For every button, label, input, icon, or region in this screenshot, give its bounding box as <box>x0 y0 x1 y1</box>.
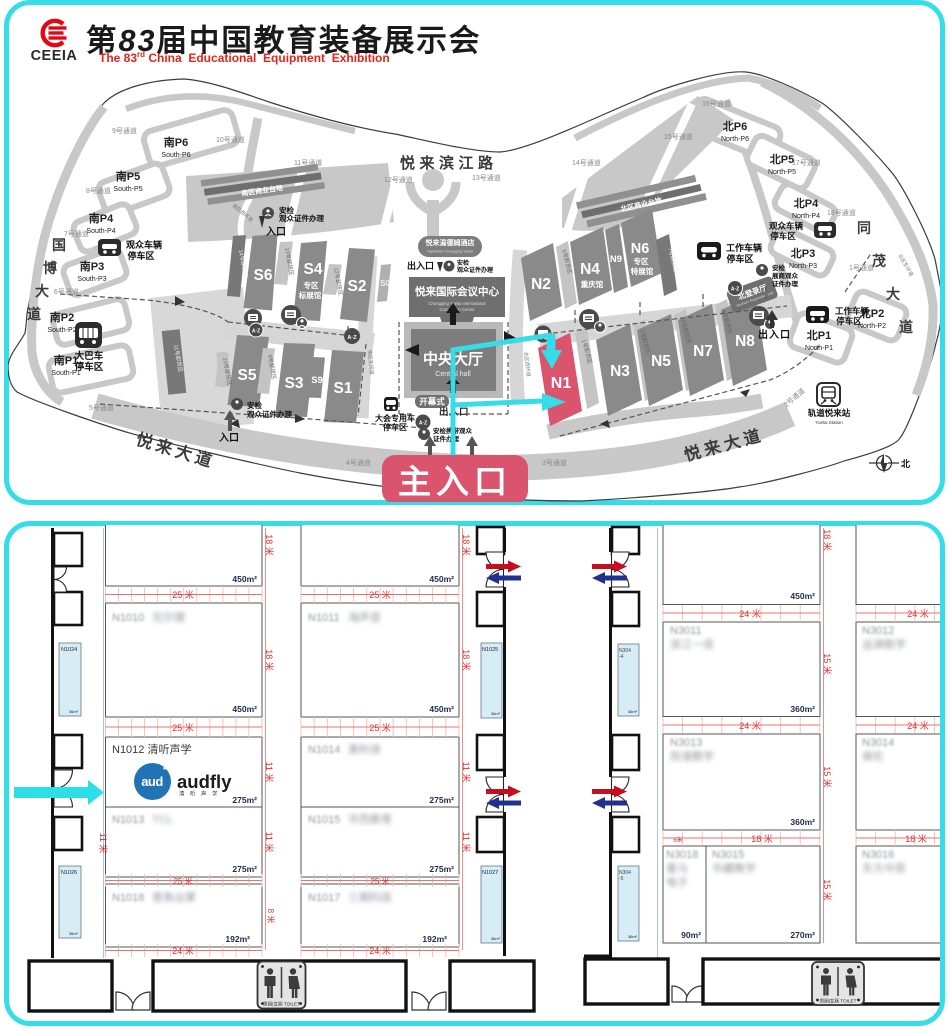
svg-text:18 米: 18 米 <box>751 833 773 844</box>
svg-text:360m²: 360m² <box>790 704 815 714</box>
svg-text:出入口: 出入口 <box>407 260 434 271</box>
svg-text:博: 博 <box>43 260 57 276</box>
svg-text:275m²: 275m² <box>429 864 454 874</box>
svg-text:450m²: 450m² <box>790 591 815 601</box>
svg-text:192m²: 192m² <box>422 934 447 944</box>
svg-text:N1026: N1026 <box>61 870 77 876</box>
svg-text:N1010: N1010 <box>112 612 144 624</box>
svg-text:14号通道: 14号通道 <box>572 158 601 167</box>
svg-text:North-P2: North-P2 <box>858 323 886 330</box>
svg-text:275m²: 275m² <box>232 795 257 805</box>
svg-text:36m²: 36m² <box>491 936 501 941</box>
svg-text:450m²: 450m² <box>232 574 257 584</box>
svg-text:A·Z: A·Z <box>347 335 357 341</box>
svg-text:北: 北 <box>901 458 910 469</box>
svg-text:兄尔理: 兄尔理 <box>152 611 185 624</box>
svg-text:入口: 入口 <box>219 432 239 444</box>
svg-text:South-P5: South-P5 <box>113 186 142 193</box>
svg-text:11 米: 11 米 <box>461 832 472 853</box>
svg-text:N1015: N1015 <box>308 814 340 826</box>
svg-text:6米: 6米 <box>673 836 682 844</box>
svg-text:North-P3: North-P3 <box>789 263 817 270</box>
svg-text:11 米: 11 米 <box>461 762 472 783</box>
svg-text:观众车辆: 观众车辆 <box>769 221 804 231</box>
svg-text:男厕|女厕 TOILET: 男厕|女厕 TOILET <box>820 998 857 1005</box>
svg-text:南P2: 南P2 <box>50 310 74 324</box>
svg-text:-4: -4 <box>619 654 624 660</box>
svg-text:N1011: N1011 <box>308 612 340 624</box>
svg-text:36m²: 36m² <box>69 931 79 936</box>
svg-text:N3: N3 <box>610 363 630 380</box>
svg-text:18 米: 18 米 <box>264 534 275 556</box>
svg-text:开幕式: 开幕式 <box>419 397 445 407</box>
svg-text:S5: S5 <box>238 367 257 384</box>
svg-text:停车区: 停车区 <box>836 316 862 326</box>
svg-text:N1012 清听声学: N1012 清听声学 <box>112 742 191 756</box>
svg-text:停车区: 停车区 <box>75 361 104 373</box>
svg-text:275m²: 275m² <box>232 864 257 874</box>
svg-text:道: 道 <box>899 319 913 335</box>
svg-text:8号通道: 8号通道 <box>86 186 111 195</box>
svg-text:15 米: 15 米 <box>822 766 833 788</box>
svg-text:A·Z: A·Z <box>252 329 260 335</box>
svg-text:观众车辆: 观众车辆 <box>126 239 162 250</box>
svg-text:停车区: 停车区 <box>726 253 753 264</box>
svg-text:25 米: 25 米 <box>172 589 194 600</box>
svg-text:3号通道: 3号通道 <box>542 458 567 467</box>
svg-text:24 米: 24 米 <box>369 945 391 956</box>
svg-text:三期科技: 三期科技 <box>348 890 392 904</box>
svg-text:保伦: 保伦 <box>862 749 884 763</box>
svg-text:N3015: N3015 <box>712 849 744 861</box>
svg-text:aud: aud <box>141 774 163 789</box>
svg-text:墨马: 墨马 <box>666 862 688 875</box>
svg-text:海声音: 海声音 <box>348 610 381 624</box>
svg-text:N1024: N1024 <box>61 647 77 653</box>
svg-text:10号通道: 10号通道 <box>216 135 245 144</box>
svg-text:茂: 茂 <box>872 253 886 269</box>
svg-text:TCL: TCL <box>152 814 173 826</box>
svg-text:24 米: 24 米 <box>907 720 929 731</box>
svg-text:证件办理: 证件办理 <box>433 434 460 443</box>
svg-text:运渊数学: 运渊数学 <box>862 637 906 651</box>
svg-text:N1017: N1017 <box>308 892 340 904</box>
svg-text:N3013: N3013 <box>670 737 702 749</box>
svg-text:25 米: 25 米 <box>369 589 391 600</box>
svg-text:专区: 专区 <box>304 280 319 290</box>
svg-text:北P6: 北P6 <box>723 119 747 133</box>
svg-text:轨道悦来站: 轨道悦来站 <box>808 408 851 418</box>
svg-text:15 米: 15 米 <box>822 879 833 901</box>
svg-text:北P4: 北P4 <box>794 196 819 210</box>
svg-text:36m²: 36m² <box>628 709 638 714</box>
svg-text:90m²: 90m² <box>681 930 701 940</box>
svg-text:192m²: 192m² <box>225 934 250 944</box>
svg-text:男厕|女厕 TOILET: 男厕|女厕 TOILET <box>263 1001 300 1008</box>
svg-text:普魚出軍: 普魚出軍 <box>152 890 196 904</box>
svg-text:观众证件办理: 观众证件办理 <box>279 213 324 223</box>
svg-text:工作车辆: 工作车辆 <box>726 242 762 253</box>
svg-text:阳澄教学: 阳澄教学 <box>670 749 714 763</box>
svg-text:悦来国际会议中心: 悦来国际会议中心 <box>415 285 499 298</box>
svg-text:North-P1: North-P1 <box>805 345 833 352</box>
svg-text:South-P2: South-P2 <box>47 327 76 334</box>
svg-text:S0: S0 <box>380 279 390 288</box>
svg-text:9号通道: 9号通道 <box>112 126 137 135</box>
svg-text:同: 同 <box>857 220 871 236</box>
svg-text:audfly: audfly <box>177 771 232 792</box>
svg-text:专区: 专区 <box>634 256 649 266</box>
svg-text:展商观众: 展商观众 <box>771 271 799 280</box>
svg-text:36m²: 36m² <box>628 934 638 939</box>
svg-text:25 米: 25 米 <box>370 876 389 886</box>
svg-text:N3016: N3016 <box>862 849 894 861</box>
svg-text:南P6: 南P6 <box>164 135 188 149</box>
svg-text:N1027: N1027 <box>482 870 498 876</box>
svg-text:N1013: N1013 <box>112 814 144 826</box>
svg-text:36m²: 36m² <box>69 709 79 714</box>
svg-text:450m²: 450m² <box>429 574 454 584</box>
svg-text:南P4: 南P4 <box>89 211 114 225</box>
svg-text:N4: N4 <box>580 261 600 278</box>
svg-text:工作车辆: 工作车辆 <box>835 306 870 316</box>
svg-text:-5: -5 <box>619 876 624 882</box>
svg-text:Yuelai Station: Yuelai Station <box>815 420 843 425</box>
svg-text:华藏教学: 华藏教学 <box>712 861 756 875</box>
svg-text:S1: S1 <box>334 380 353 397</box>
svg-text:25 米: 25 米 <box>172 722 194 733</box>
svg-text:15号通道: 15号通道 <box>664 132 693 141</box>
svg-text:18号通道: 18号通道 <box>827 208 856 217</box>
svg-text:观众证件办理: 观众证件办理 <box>247 409 292 419</box>
svg-text:重庆馆: 重庆馆 <box>581 279 604 289</box>
svg-text:南P3: 南P3 <box>80 259 104 273</box>
svg-text:主入口: 主入口 <box>398 463 512 500</box>
svg-text:N8: N8 <box>735 333 755 350</box>
svg-text:16号通道: 16号通道 <box>702 99 731 108</box>
svg-text:7号通道: 7号通道 <box>64 229 89 238</box>
svg-text:18 米: 18 米 <box>905 833 927 844</box>
svg-text:360m²: 360m² <box>790 817 815 827</box>
svg-text:North-P6: North-P6 <box>721 136 749 143</box>
svg-text:24 米: 24 米 <box>907 608 929 619</box>
svg-text:N7: N7 <box>693 343 713 360</box>
svg-text:11 米: 11 米 <box>98 833 109 854</box>
svg-text:24 米: 24 米 <box>739 720 761 731</box>
svg-text:东方中原: 东方中原 <box>862 861 906 875</box>
svg-text:24 米: 24 米 <box>739 608 761 619</box>
svg-text:S4: S4 <box>304 261 323 278</box>
svg-text:华而教育: 华而教育 <box>348 812 392 826</box>
svg-text:12号通道: 12号通道 <box>384 175 413 184</box>
svg-text:N6: N6 <box>631 241 650 257</box>
svg-text:25 米: 25 米 <box>173 876 192 886</box>
svg-text:北P5: 北P5 <box>770 152 794 166</box>
svg-text:18 米: 18 米 <box>822 529 833 551</box>
svg-text:停车区: 停车区 <box>383 422 407 432</box>
svg-text:美利浪: 美利浪 <box>348 742 381 756</box>
svg-text:11 米: 11 米 <box>264 762 275 783</box>
svg-text:N1: N1 <box>551 375 572 392</box>
svg-text:N3014: N3014 <box>862 737 894 749</box>
svg-text:大会专用车: 大会专用车 <box>375 413 415 423</box>
svg-text:安检: 安检 <box>457 259 469 267</box>
svg-text:18 米: 18 米 <box>461 534 472 556</box>
svg-text:450m²: 450m² <box>232 704 257 714</box>
svg-text:出入口: 出入口 <box>758 328 791 341</box>
svg-text:南P5: 南P5 <box>116 169 140 183</box>
svg-text:浙江一佰: 浙江一佰 <box>670 638 714 651</box>
svg-text:A·Z: A·Z <box>419 421 427 427</box>
svg-text:N3011: N3011 <box>670 625 702 637</box>
svg-text:N9: N9 <box>610 254 622 265</box>
svg-text:18 米: 18 米 <box>264 649 275 671</box>
svg-text:停车区: 停车区 <box>770 231 796 241</box>
svg-text:450m²: 450m² <box>429 704 454 714</box>
svg-text:1号通道: 1号通道 <box>849 263 874 272</box>
svg-text:17号通道: 17号通道 <box>792 158 821 167</box>
svg-text:S3: S3 <box>285 375 304 392</box>
svg-text:北P3: 北P3 <box>791 246 815 260</box>
svg-text:国: 国 <box>52 237 66 253</box>
svg-text:悦来温德姆酒店: 悦来温德姆酒店 <box>426 238 475 247</box>
svg-text:36m²: 36m² <box>491 711 501 716</box>
svg-text:安检: 安检 <box>247 400 262 410</box>
svg-text:4号通道: 4号通道 <box>346 458 371 467</box>
svg-text:Wyndham Chongqing Yuelai: Wyndham Chongqing Yuelai <box>427 250 472 254</box>
svg-text:S2: S2 <box>348 278 367 295</box>
svg-text:11号通道: 11号通道 <box>294 158 322 167</box>
svg-text:11 米: 11 米 <box>264 832 275 853</box>
svg-text:安检: 安检 <box>772 263 786 272</box>
svg-text:270m²: 270m² <box>790 930 815 940</box>
svg-text:标展馆: 标展馆 <box>298 290 322 300</box>
svg-text:N5: N5 <box>651 353 671 370</box>
svg-text:N1018: N1018 <box>112 892 144 904</box>
svg-text:8 米: 8 米 <box>266 909 276 924</box>
svg-text:电子: 电子 <box>666 876 688 889</box>
svg-text:South-P3: South-P3 <box>77 276 106 283</box>
svg-text:悦来滨江路: 悦来滨江路 <box>400 154 498 172</box>
svg-text:N3018: N3018 <box>666 849 698 861</box>
svg-text:275m²: 275m² <box>429 795 454 805</box>
svg-text:25 米: 25 米 <box>369 722 391 733</box>
svg-text:N3012: N3012 <box>862 625 894 637</box>
svg-text:24 米: 24 米 <box>172 945 194 956</box>
svg-text:N2: N2 <box>531 276 551 293</box>
svg-text:15 米: 15 米 <box>822 653 833 675</box>
svg-text:13号通道: 13号通道 <box>472 173 501 182</box>
svg-text:特展馆: 特展馆 <box>631 266 654 276</box>
svg-text:S9: S9 <box>311 375 323 386</box>
svg-text:大: 大 <box>886 286 900 302</box>
svg-text:停车区: 停车区 <box>127 250 154 261</box>
svg-text:N1025: N1025 <box>482 647 498 653</box>
svg-text:A·Z: A·Z <box>731 287 739 293</box>
svg-text:证件办理: 证件办理 <box>772 279 799 288</box>
svg-text:North-P5: North-P5 <box>768 169 796 176</box>
svg-text:观众证件办理: 观众证件办理 <box>457 266 493 274</box>
svg-text:South-P6: South-P6 <box>161 152 190 159</box>
svg-text:S6: S6 <box>254 267 273 284</box>
svg-text:Chongqing Yuelai International: Chongqing Yuelai International <box>429 301 486 306</box>
svg-text:清听声学: 清听声学 <box>179 790 223 798</box>
svg-text:大: 大 <box>35 283 49 299</box>
svg-text:大巴车: 大巴车 <box>75 350 104 362</box>
svg-text:北P1: 北P1 <box>807 328 831 342</box>
svg-text:N1014: N1014 <box>308 744 340 756</box>
svg-text:入口: 入口 <box>266 226 286 238</box>
svg-text:5号通道: 5号通道 <box>89 403 114 412</box>
svg-text:6号通道: 6号通道 <box>54 287 79 296</box>
svg-text:18 米: 18 米 <box>461 649 472 671</box>
svg-text:道: 道 <box>27 306 41 322</box>
svg-text:South-P4: South-P4 <box>86 228 115 235</box>
svg-text:North-P4: North-P4 <box>792 213 820 220</box>
